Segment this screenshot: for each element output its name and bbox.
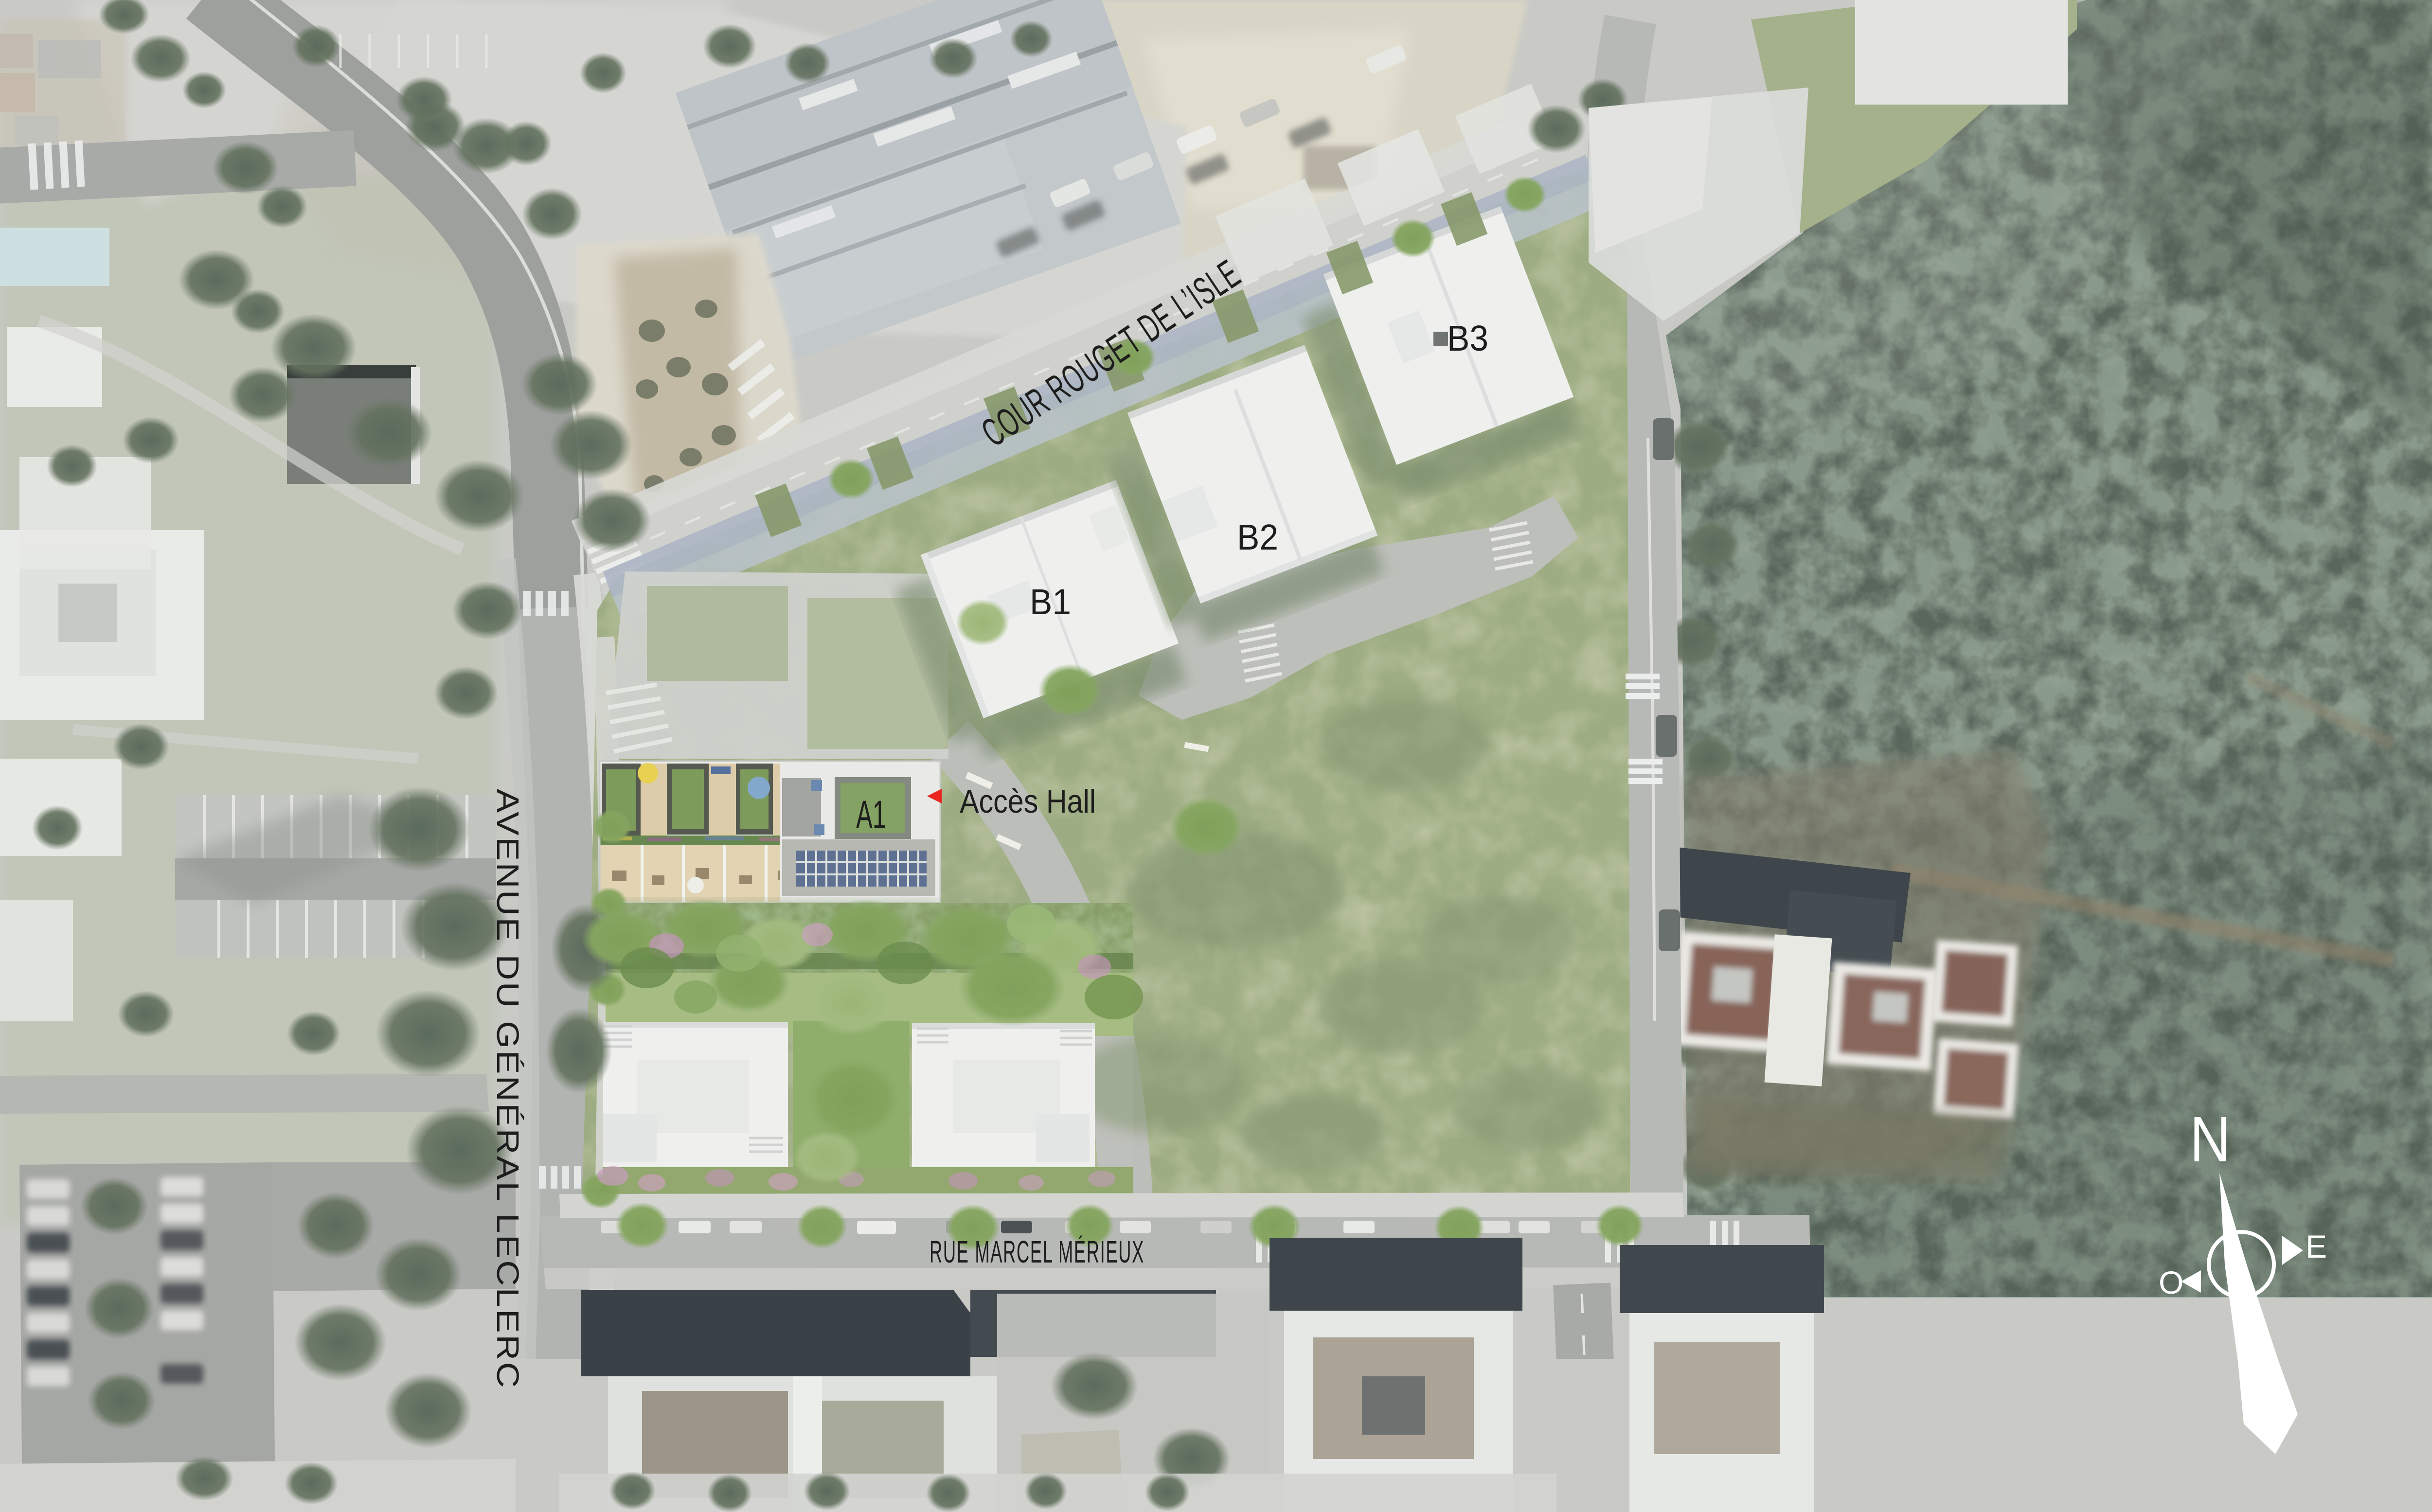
svg-text:A1: A1: [856, 793, 886, 837]
svg-text:N: N: [2190, 1103, 2231, 1175]
svg-text:AVENUE DU GÉNÉRAL LECLERC: AVENUE DU GÉNÉRAL LECLERC: [490, 789, 525, 1389]
svg-text:B2: B2: [1237, 517, 1278, 557]
svg-text:O: O: [2159, 1264, 2183, 1300]
svg-text:RUE MARCEL MÉRIEUX: RUE MARCEL MÉRIEUX: [930, 1234, 1144, 1269]
svg-text:B3: B3: [1447, 318, 1488, 358]
svg-text:E: E: [2306, 1228, 2327, 1264]
svg-text:Accès Hall: Accès Hall: [960, 783, 1096, 820]
svg-text:B1: B1: [1030, 582, 1071, 622]
